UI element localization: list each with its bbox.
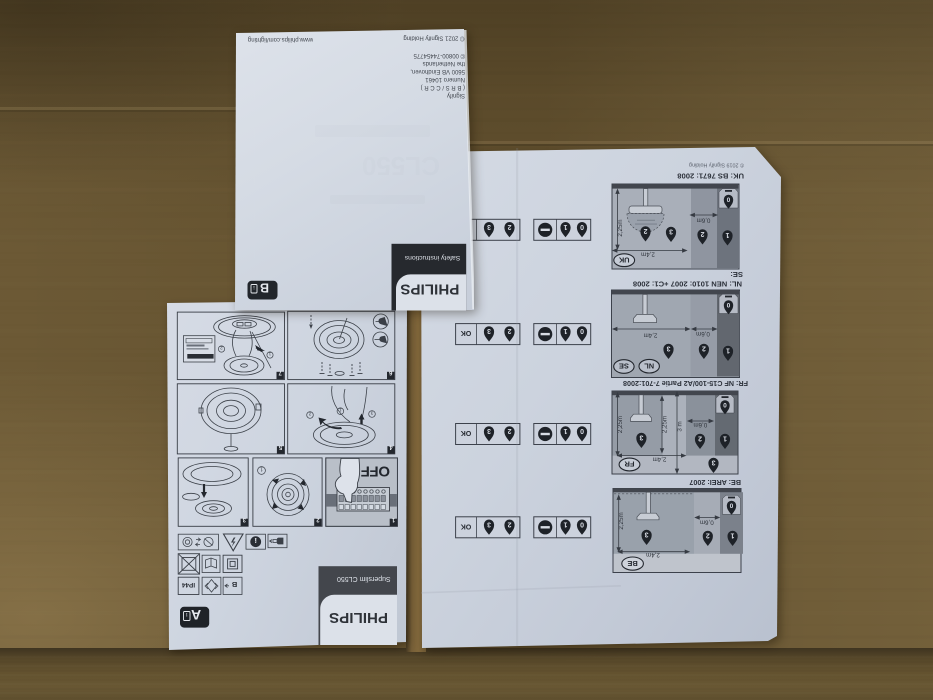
- svg-text:Safety instructions: Safety instructions: [404, 254, 460, 261]
- svg-text:Superslim CL550: Superslim CL550: [337, 575, 391, 582]
- svg-text:2,25m: 2,25m: [617, 219, 624, 236]
- svg-text:OFF: OFF: [361, 463, 390, 480]
- svg-text:2,4m: 2,4m: [644, 332, 658, 339]
- svg-text:2,25m: 2,25m: [618, 512, 625, 529]
- svg-text:( B R S / C C R ): ( B R S / C C R ): [421, 84, 465, 90]
- svg-text:B: B: [260, 281, 269, 295]
- svg-text:2,25m: 2,25m: [617, 416, 624, 433]
- svg-text:UK: UK: [618, 255, 629, 264]
- svg-text:1: 1: [260, 466, 263, 472]
- svg-text:FR: FR: [624, 460, 635, 469]
- svg-text:2: 2: [308, 411, 311, 417]
- svg-text:CL550: CL550: [362, 151, 440, 181]
- svg-text:2,4m: 2,4m: [641, 251, 655, 258]
- svg-text:OK: OK: [461, 329, 472, 336]
- svg-text:1: 1: [268, 352, 271, 357]
- svg-text:BE: AREI: 2007: BE: AREI: 2007: [689, 478, 741, 487]
- svg-text:3: 3: [370, 410, 373, 416]
- svg-text:0,6m: 0,6m: [700, 519, 714, 526]
- svg-text:OK: OK: [461, 429, 472, 436]
- svg-text:A: A: [191, 607, 201, 623]
- svg-text:i: i: [255, 536, 257, 545]
- svg-text:0,6m: 0,6m: [697, 217, 711, 224]
- svg-text:NL: NEN 1010: 2007 +C1: 2008: NL: NEN 1010: 2007 +C1: 2008: [633, 279, 742, 288]
- svg-text:www.philips.com/lighting: www.philips.com/lighting: [248, 36, 314, 42]
- svg-text:2,4m: 2,4m: [653, 455, 667, 462]
- svg-text:IP44: IP44: [181, 581, 195, 588]
- svg-text:UK: BS 7671: 2008: UK: BS 7671: 2008: [677, 172, 744, 181]
- svg-text:2: 2: [220, 346, 223, 351]
- svg-text:FR: NF C15-100/A2 Partie 7-701: FR: NF C15-100/A2 Partie 7-701:2008: [623, 379, 748, 388]
- svg-text:BE: BE: [627, 559, 637, 568]
- svg-text:Signify: Signify: [447, 92, 465, 98]
- svg-text:PHILIPS: PHILIPS: [329, 609, 388, 626]
- svg-text:© 2019 Signify Holding: © 2019 Signify Holding: [689, 162, 744, 169]
- svg-text:B: B: [231, 580, 237, 589]
- svg-text:the Netherlands: the Netherlands: [423, 60, 465, 66]
- svg-text:OK: OK: [461, 522, 472, 529]
- svg-text:5600 VB Eindhoven,: 5600 VB Eindhoven,: [410, 68, 465, 74]
- svg-text:PHILIPS: PHILIPS: [400, 281, 459, 298]
- svg-text:SE:: SE:: [730, 270, 743, 279]
- svg-text:0,6m: 0,6m: [693, 421, 707, 428]
- svg-text:Numero 10461: Numero 10461: [425, 76, 465, 82]
- svg-text:SE: SE: [619, 362, 629, 371]
- svg-text:2,25m: 2,25m: [661, 416, 668, 433]
- svg-text:3 m: 3 m: [676, 421, 683, 431]
- svg-text:1: 1: [339, 407, 342, 413]
- svg-text:© 00800-74454775: © 00800-74454775: [413, 52, 465, 59]
- svg-text:NL: NL: [644, 361, 654, 370]
- svg-text:0,6m: 0,6m: [696, 330, 710, 337]
- svg-text:2,4m: 2,4m: [646, 551, 660, 558]
- svg-text:© 2021 Signify Holding: © 2021 Signify Holding: [403, 35, 464, 42]
